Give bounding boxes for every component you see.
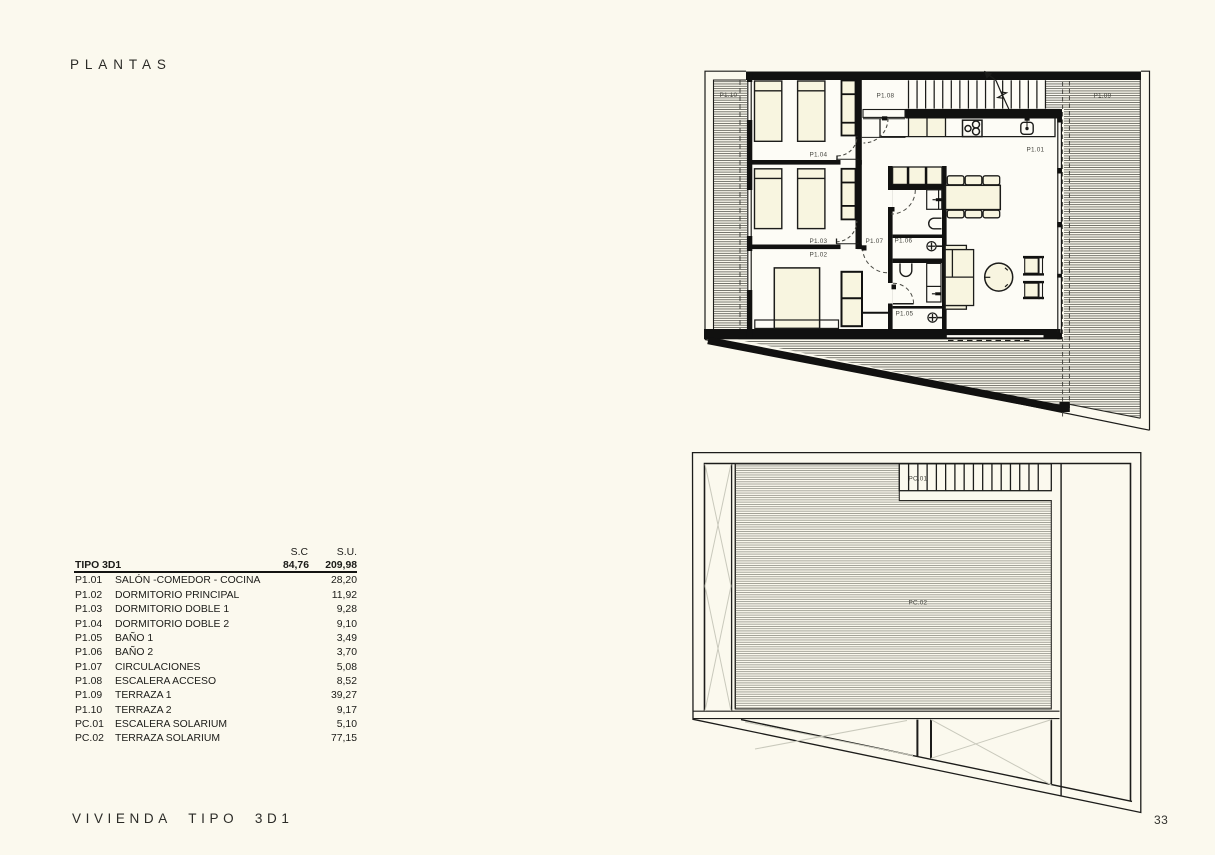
svg-text:P1.08: P1.08 bbox=[877, 92, 895, 99]
svg-text:PC.01: PC.01 bbox=[909, 476, 928, 483]
svg-text:P1.02: P1.02 bbox=[810, 251, 828, 258]
svg-text:P1.06: P1.06 bbox=[895, 238, 913, 245]
svg-text:P1.05: P1.05 bbox=[896, 311, 914, 318]
svg-text:P1.09: P1.09 bbox=[1094, 92, 1112, 99]
svg-text:P1.03: P1.03 bbox=[810, 238, 828, 245]
svg-text:P1.04: P1.04 bbox=[810, 151, 828, 158]
svg-text:P1.10: P1.10 bbox=[720, 92, 738, 99]
svg-text:P1.07: P1.07 bbox=[866, 238, 884, 245]
svg-text:P1.01: P1.01 bbox=[1027, 147, 1045, 154]
svg-text:PC.02: PC.02 bbox=[909, 600, 928, 607]
